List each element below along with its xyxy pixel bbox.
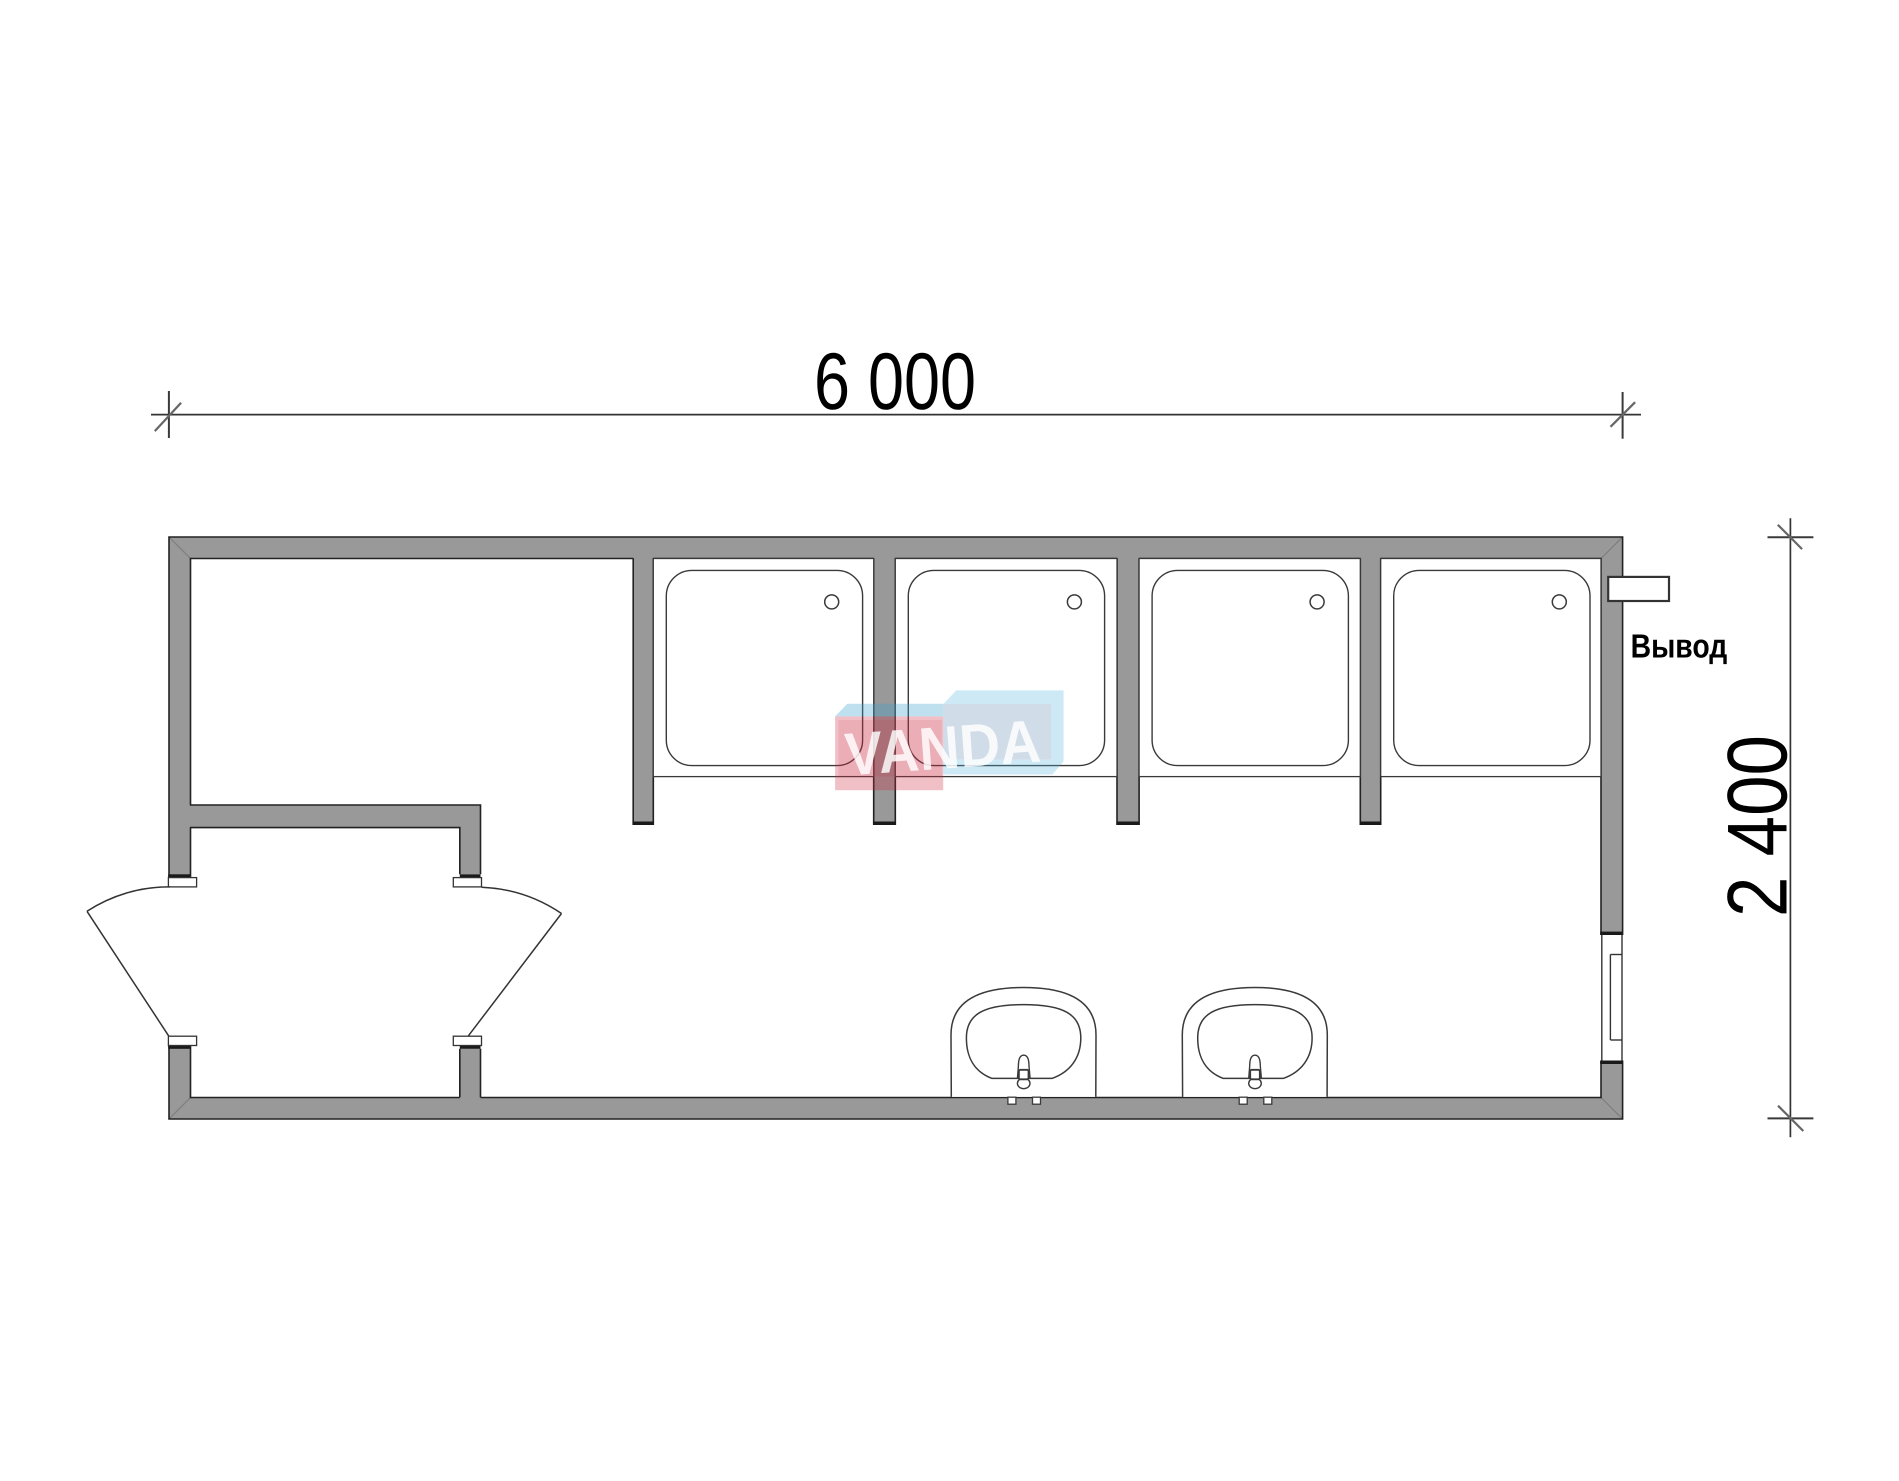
svg-text:VANDA: VANDA (843, 707, 1043, 789)
svg-text:Вывод: Вывод (1631, 629, 1728, 666)
svg-text:2 400: 2 400 (1711, 735, 1806, 917)
svg-text:6 000: 6 000 (814, 337, 976, 427)
